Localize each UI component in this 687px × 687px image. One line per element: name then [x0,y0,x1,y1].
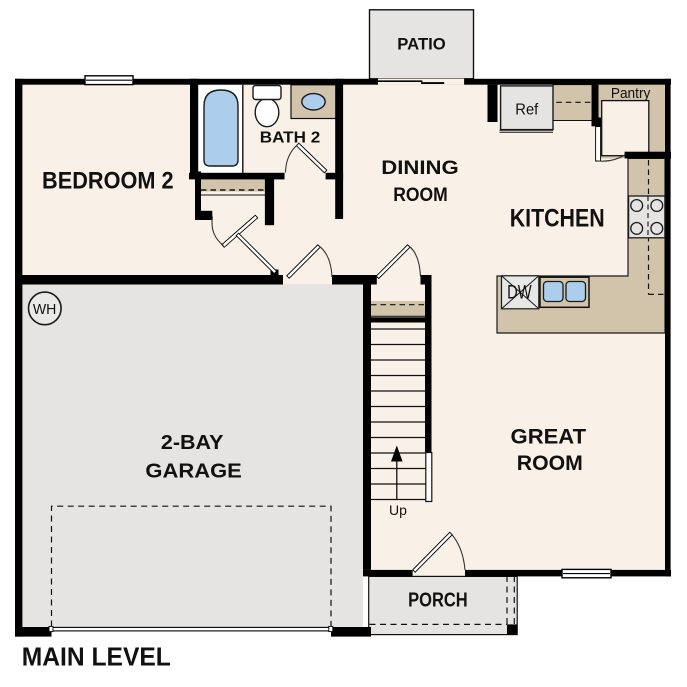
svg-text:MAIN LEVEL: MAIN LEVEL [22,642,171,672]
svg-text:DINING: DINING [381,157,459,179]
svg-text:Ref: Ref [515,101,539,118]
svg-text:Pantry: Pantry [611,85,651,102]
svg-text:DW: DW [507,283,532,304]
svg-text:ROOM: ROOM [393,184,448,206]
svg-text:PATIO: PATIO [397,34,446,53]
svg-text:Up: Up [389,502,407,518]
svg-text:2-BAY: 2-BAY [161,432,224,454]
svg-text:KITCHEN: KITCHEN [510,204,605,232]
svg-text:PORCH: PORCH [408,589,468,611]
svg-text:BATH 2: BATH 2 [260,129,321,146]
svg-text:WH: WH [33,301,57,318]
svg-text:ROOM: ROOM [517,451,583,475]
svg-text:GREAT: GREAT [511,425,587,449]
svg-text:BEDROOM 2: BEDROOM 2 [42,168,174,195]
svg-text:GARAGE: GARAGE [145,460,242,482]
